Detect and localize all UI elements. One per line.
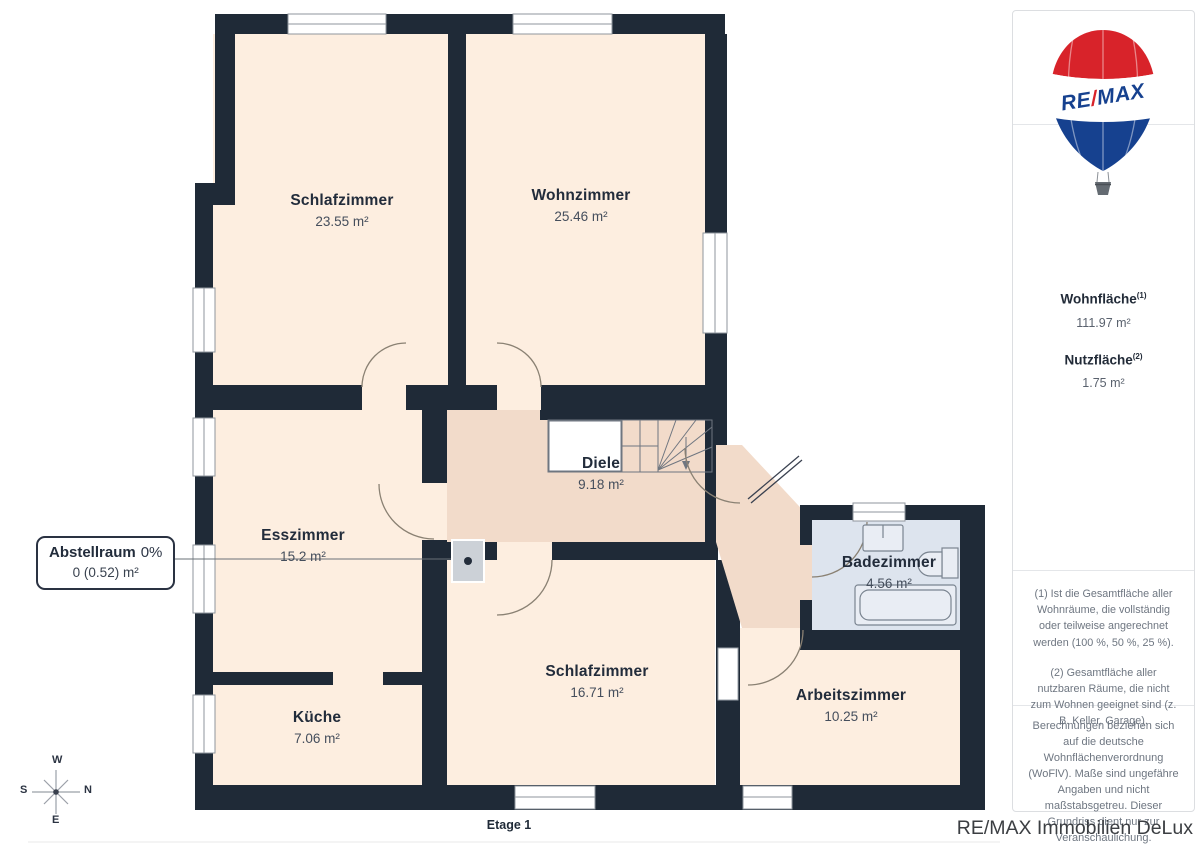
- bathtub: [855, 585, 956, 625]
- compass-north: N: [84, 784, 92, 796]
- balloon-basket: [1095, 172, 1111, 195]
- room-label-diele: Diele 9.18 m²: [578, 456, 624, 491]
- toilet-tank: [942, 548, 958, 578]
- footnote-1: (1) Ist die Gesamtfläche aller Wohnräume…: [1026, 586, 1181, 651]
- window: [703, 233, 727, 333]
- callout-anchor-dot: [464, 557, 472, 565]
- floorplan-page: Schlafzimmer 23.55 m² Wohnzimmer 25.46 m…: [0, 0, 1200, 848]
- abstellraum-label: Abstellraum: [49, 544, 136, 561]
- window: [515, 786, 595, 809]
- abstellraum-area: 0 (0.52) m²: [49, 565, 162, 581]
- window: [513, 14, 612, 34]
- abstellraum-percent: 0%: [141, 544, 163, 561]
- window: [193, 418, 215, 476]
- metric-superscript: (2): [1133, 352, 1143, 361]
- abstellraum-callout: Abstellraum0% 0 (0.52) m²: [36, 536, 175, 590]
- metric-value: 111.97 m²: [1013, 316, 1194, 330]
- room-label-kueche: Küche 7.06 m²: [293, 710, 341, 745]
- window: [193, 288, 215, 352]
- compass-east: E: [52, 814, 59, 826]
- metric-value: 1.75 m²: [1013, 376, 1194, 390]
- compass-west: W: [52, 754, 62, 766]
- window: [193, 545, 215, 613]
- metric-label: Nutzfläche: [1064, 352, 1132, 367]
- room-label-badezimmer: Badezimmer 4.56 m²: [842, 555, 936, 590]
- compass-rose: W S N E: [18, 752, 94, 832]
- agency-name: RE/MAX Immobilien DeLux: [957, 817, 1193, 840]
- compass-south: S: [20, 784, 27, 796]
- sidebar-disclaimer-section: Berechnungen beziehen sich auf die deuts…: [1013, 706, 1194, 811]
- room-label-schlafzimmer-1: Schlafzimmer 23.55 m²: [290, 193, 393, 228]
- window: [743, 786, 792, 809]
- metric-wohnflaeche: Wohnfläche(1) 111.97 m²: [1013, 291, 1194, 330]
- metric-label: Wohnfläche: [1060, 292, 1136, 307]
- floor-label: Etage 1: [487, 818, 531, 832]
- metric-nutzflaeche: Nutzfläche(2) 1.75 m²: [1013, 352, 1194, 391]
- remax-balloon-logo: RE/MAX: [1042, 24, 1164, 196]
- window: [288, 14, 386, 34]
- room-label-wohnzimmer: Wohnzimmer 25.46 m²: [531, 188, 630, 223]
- window: [853, 503, 905, 521]
- room-label-esszimmer: Esszimmer 15.2 m²: [261, 528, 345, 563]
- room-label-arbeitszimmer: Arbeitszimmer 10.25 m²: [796, 688, 906, 723]
- metric-superscript: (1): [1137, 291, 1147, 300]
- room-label-schlafzimmer-2: Schlafzimmer 16.71 m²: [545, 664, 648, 699]
- sidebar-footnotes-section: (1) Ist die Gesamtfläche aller Wohnräume…: [1013, 571, 1194, 706]
- window: [193, 695, 215, 753]
